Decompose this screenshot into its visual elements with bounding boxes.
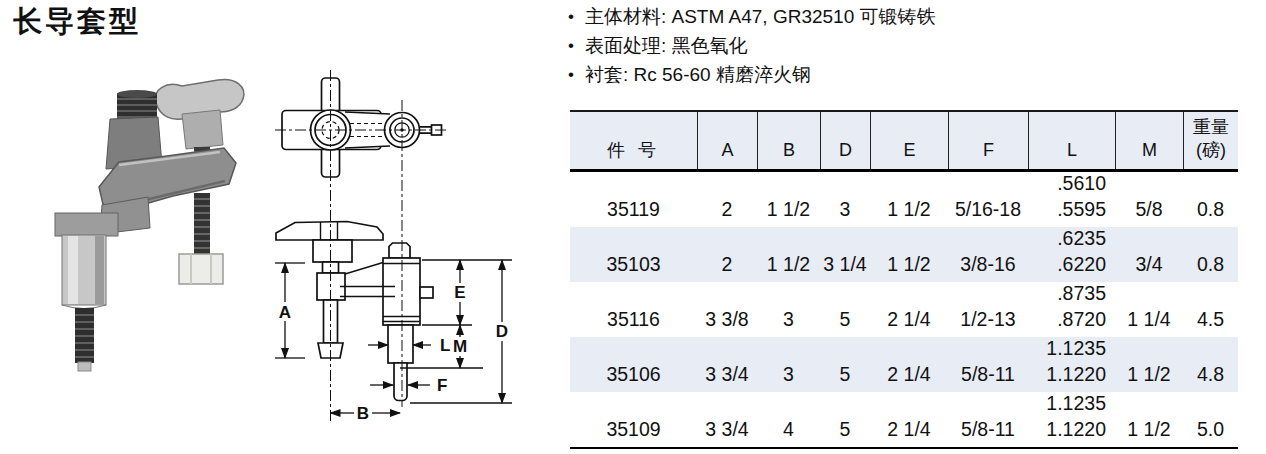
dim-label-E: E [454, 283, 465, 302]
cell-dim-e: 2 1/4 [870, 337, 948, 392]
cell-dim-m: 1 1/2 [1115, 337, 1183, 392]
knob-hub [182, 110, 223, 149]
cell-dim-a: 2 [697, 227, 757, 282]
table-rows: 3511921 1/231 1/25/16-18.5610.55955/80.8… [570, 172, 1238, 447]
col-header-e: E [870, 112, 948, 169]
cell-dim-f: 3/8-16 [948, 227, 1028, 282]
cell-dim-l: .5610.5595 [1028, 172, 1115, 227]
bullet-icon: • [568, 61, 574, 89]
spec-list: • 主体材料: ASTM A47, GR32510 可锻铸铁 • 表面处理: 黑… [568, 3, 936, 90]
clamp-photo-illustration [15, 65, 250, 385]
cell-dim-b: 4 [757, 392, 820, 447]
cell-dim-e: 2 1/4 [870, 282, 948, 337]
cell-weight: 0.8 [1183, 227, 1238, 282]
cell-dim-l: 1.12351.1220 [1028, 392, 1115, 447]
cell-dim-d: 5 [820, 392, 870, 447]
spec-table: 件 号 A B D E F L M 重量 (磅) 3511921 1/231 1… [570, 110, 1238, 449]
cell-dim-b: 1 1/2 [757, 172, 820, 227]
col-header-d: D [820, 112, 870, 169]
dim-label-F: F [437, 376, 447, 395]
cell-dim-a: 3 3/8 [697, 282, 757, 337]
thread-rod-right [194, 193, 210, 255]
bushing-collar [55, 213, 118, 236]
table-row: 351163 3/8352 1/41/2-13.8735.87201 1/44.… [570, 282, 1238, 337]
col-header-b: B [757, 112, 820, 169]
cell-dim-f: 5/16-18 [948, 172, 1028, 227]
dim-label-M: M [453, 337, 467, 356]
dim-label-A: A [279, 303, 291, 322]
spec-item: • 主体材料: ASTM A47, GR32510 可锻铸铁 [568, 3, 936, 32]
cell-part-number: 35106 [570, 337, 697, 392]
cell-part-number: 35109 [570, 392, 697, 447]
col-header-weight: 重量 (磅) [1183, 112, 1238, 169]
cell-dim-d: 3 1/4 [820, 227, 870, 282]
col-header-f: F [948, 112, 1028, 169]
spec-text: 主体材料: ASTM A47, GR32510 可锻铸铁 [585, 3, 936, 31]
cell-weight: 4.8 [1183, 337, 1238, 392]
cell-weight: 5.0 [1183, 392, 1238, 447]
bullet-icon: • [568, 32, 574, 60]
cell-dim-l: .6235.6220 [1028, 227, 1115, 282]
catalog-page: 长导套型 • 主体材料: ASTM A47, GR32510 可锻铸铁 • 表面… [0, 0, 1266, 454]
cell-dim-l: 1.12351.1220 [1028, 337, 1115, 392]
cell-dim-f: 1/2-13 [948, 282, 1028, 337]
cell-dim-d: 5 [820, 337, 870, 392]
cell-dim-e: 1 1/2 [870, 172, 948, 227]
cell-dim-m: 1 1/4 [1115, 282, 1183, 337]
cell-dim-f: 5/8-11 [948, 392, 1028, 447]
cell-dim-b: 3 [757, 337, 820, 392]
cell-part-number: 35119 [570, 172, 697, 227]
cell-weight: 4.5 [1183, 282, 1238, 337]
bullet-icon: • [568, 3, 574, 31]
cell-dim-m: 5/8 [1115, 172, 1183, 227]
cell-dim-a: 2 [697, 172, 757, 227]
cell-dim-b: 3 [757, 282, 820, 337]
page-title: 长导套型 [13, 2, 141, 42]
cell-dim-a: 3 3/4 [697, 337, 757, 392]
product-photo [15, 65, 250, 385]
spec-text: 表面处理: 黑色氧化 [585, 32, 748, 60]
table-header-row: 件 号 A B D E F L M 重量 (磅) [570, 110, 1238, 172]
cell-dim-e: 1 1/2 [870, 227, 948, 282]
cell-dim-a: 3 3/4 [697, 392, 757, 447]
cell-part-number: 35103 [570, 227, 697, 282]
cell-dim-f: 5/8-11 [948, 337, 1028, 392]
cell-dim-d: 3 [820, 172, 870, 227]
table-row: 351093 3/4452 1/45/8-111.12351.12201 1/2… [570, 392, 1238, 447]
table-row: 3511921 1/231 1/25/16-18.5610.55955/80.8 [570, 172, 1238, 227]
col-header-part: 件 号 [570, 112, 697, 169]
col-header-a: A [697, 112, 757, 169]
hex-nut [179, 254, 223, 284]
cell-dim-l: .8735.8720 [1028, 282, 1115, 337]
spec-item: • 衬套: Rc 56-60 精磨淬火钢 [568, 61, 936, 90]
cell-dim-b: 1 1/2 [757, 227, 820, 282]
spec-text: 衬套: Rc 56-60 精磨淬火钢 [585, 61, 811, 89]
cell-dim-m: 1 1/2 [1115, 392, 1183, 447]
technical-drawing: A E M D L F B [250, 55, 550, 454]
cell-dim-e: 2 1/4 [870, 392, 948, 447]
dim-label-L: L [440, 336, 450, 355]
cell-dim-m: 3/4 [1115, 227, 1183, 282]
dimension-drawing: A E M D L F B [250, 55, 550, 454]
dim-label-B: B [357, 404, 369, 423]
cell-dim-d: 5 [820, 282, 870, 337]
table-row: 3510321 1/23 1/41 1/23/8-16.6235.62203/4… [570, 227, 1238, 282]
col-header-m: M [1115, 112, 1183, 169]
cell-part-number: 35116 [570, 282, 697, 337]
cell-weight: 0.8 [1183, 172, 1238, 227]
spec-item: • 表面处理: 黑色氧化 [568, 32, 936, 61]
dim-label-D: D [496, 322, 508, 341]
table-row: 351063 3/4352 1/45/8-111.12351.12201 1/2… [570, 337, 1238, 392]
col-header-l: L [1028, 112, 1115, 169]
